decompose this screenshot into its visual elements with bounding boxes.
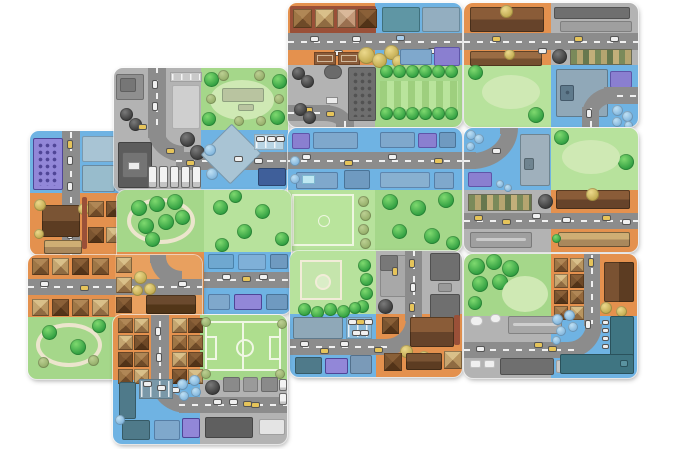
- tree-icon: [158, 214, 174, 230]
- building-stripe: [513, 323, 557, 327]
- building: [500, 358, 554, 375]
- autumn-tree-icon: [600, 302, 612, 314]
- car-icon: [186, 160, 195, 166]
- tree-icon: [528, 107, 544, 123]
- tree-icon: [42, 325, 57, 340]
- car-icon: [532, 213, 541, 219]
- car-icon: [40, 281, 49, 287]
- pitcher-circle: [315, 274, 331, 290]
- bush-icon: [256, 116, 266, 126]
- autumn-tree-icon: [144, 283, 156, 295]
- building: [266, 294, 288, 310]
- car-icon: [474, 215, 483, 221]
- car-icon: [302, 154, 311, 160]
- house-icon: [52, 299, 69, 316]
- house-icon: [42, 205, 80, 237]
- car-icon: [602, 320, 609, 325]
- car-icon: [364, 319, 373, 325]
- tree-icon: [486, 254, 502, 270]
- bush-icon: [234, 116, 244, 126]
- house-icon: [337, 9, 356, 28]
- building: [222, 88, 264, 102]
- tree-icon: [380, 65, 393, 78]
- shrub-icon: [290, 156, 300, 166]
- bush-icon: [358, 224, 369, 235]
- building: [560, 85, 574, 101]
- tree-icon: [255, 204, 270, 219]
- truck-icon: [181, 166, 190, 188]
- car-icon: [388, 154, 397, 160]
- house-icon: [172, 352, 187, 367]
- autumn-tree-icon: [34, 229, 44, 239]
- field-circle: [236, 339, 254, 357]
- building: [470, 360, 481, 368]
- storage-tank-icon: [301, 75, 314, 88]
- tree-icon: [167, 194, 183, 210]
- car-icon: [276, 136, 285, 142]
- field-circle: [318, 215, 330, 227]
- storage-tank-icon: [303, 111, 316, 124]
- car-icon: [534, 342, 543, 348]
- shrub-icon: [191, 387, 201, 397]
- clearing: [562, 140, 620, 174]
- tree-icon: [468, 65, 483, 80]
- autumn-tree-icon: [586, 188, 599, 201]
- car-icon: [434, 158, 443, 164]
- building: [172, 85, 200, 129]
- building: [238, 104, 254, 111]
- building: [470, 316, 483, 326]
- building: [382, 7, 420, 32]
- house-icon: [118, 352, 133, 367]
- bush-icon: [360, 210, 371, 221]
- car-icon: [251, 402, 260, 408]
- car-icon: [254, 158, 263, 164]
- court-line: [317, 55, 333, 62]
- house-icon: [134, 352, 149, 367]
- court-line: [341, 55, 357, 62]
- car-icon: [326, 111, 335, 117]
- building: [234, 294, 262, 310]
- building-windows: [528, 162, 530, 166]
- tree-icon: [175, 210, 190, 225]
- car-icon: [476, 346, 485, 352]
- car-icon: [67, 140, 73, 149]
- sports-field: [205, 321, 281, 371]
- autumn-tree-icon: [500, 5, 513, 18]
- car-icon: [259, 274, 268, 280]
- tree-icon: [272, 74, 287, 89]
- road: [151, 315, 169, 379]
- building: [208, 294, 230, 310]
- building: [380, 132, 415, 148]
- bush-icon: [201, 369, 211, 379]
- car-icon: [340, 341, 349, 347]
- shrub-icon: [177, 379, 188, 390]
- shrub-icon: [179, 391, 189, 401]
- tree-icon: [229, 190, 242, 203]
- tree-icon: [275, 232, 289, 246]
- card-f[interactable]: [113, 315, 287, 444]
- car-icon: [602, 344, 609, 349]
- card-t2[interactable]: [464, 3, 638, 127]
- bush-icon: [201, 317, 211, 327]
- car-icon: [602, 328, 609, 333]
- building: [82, 165, 115, 192]
- tree-icon: [360, 273, 373, 286]
- hedge: [82, 197, 87, 249]
- tree-icon: [445, 65, 458, 78]
- car-icon: [242, 276, 251, 282]
- building: [418, 133, 437, 148]
- autumn-tree-icon: [134, 271, 147, 284]
- house-icon: [384, 353, 402, 371]
- house-icon: [604, 262, 634, 302]
- tree-icon: [468, 296, 482, 310]
- tree-icon: [149, 196, 165, 212]
- bush-icon: [218, 70, 229, 81]
- shrub-icon: [552, 336, 561, 345]
- tree-icon: [270, 110, 285, 125]
- car-icon: [492, 148, 501, 154]
- shipping-containers: [468, 194, 532, 211]
- sports-field: [292, 194, 354, 246]
- car-icon: [602, 336, 609, 341]
- car-icon: [548, 346, 557, 352]
- card-a[interactable]: [114, 68, 288, 192]
- house-icon: [44, 240, 82, 254]
- road-dash: [28, 286, 202, 288]
- bush-icon: [206, 94, 216, 104]
- tree-icon: [324, 303, 337, 316]
- road: [464, 152, 476, 169]
- house-icon: [382, 317, 399, 334]
- tree-icon: [419, 107, 432, 120]
- building: [560, 21, 632, 32]
- parking-stripes: [172, 74, 200, 80]
- storage-tank-icon: [552, 49, 567, 64]
- shrub-icon: [115, 415, 125, 425]
- building: [524, 158, 534, 170]
- storage-tank-icon: [378, 299, 393, 314]
- car-icon: [602, 215, 611, 221]
- house-icon: [118, 318, 133, 333]
- car-icon: [622, 219, 631, 225]
- building: [610, 71, 632, 88]
- bush-icon: [38, 357, 49, 368]
- house-icon: [554, 274, 568, 288]
- building: [348, 67, 376, 121]
- building: [82, 136, 115, 162]
- building: [182, 418, 200, 438]
- road-dash: [464, 160, 476, 162]
- clearing: [502, 276, 548, 312]
- building: [325, 358, 348, 374]
- truck-icon: [279, 379, 287, 391]
- tree-icon: [131, 200, 147, 216]
- tree-icon: [204, 72, 219, 87]
- tree-icon: [215, 238, 229, 252]
- court: [314, 52, 336, 65]
- tree-icon: [406, 107, 419, 120]
- building: [468, 172, 492, 187]
- autumn-tree-icon: [132, 285, 143, 296]
- car-icon: [409, 259, 415, 268]
- tree-icon: [393, 65, 406, 78]
- tree-icon: [472, 276, 488, 292]
- storage-tank-icon: [180, 132, 195, 147]
- shrub-icon: [206, 168, 218, 180]
- house-icon: [32, 258, 49, 275]
- clearing: [482, 75, 540, 109]
- truck-icon: [159, 166, 168, 188]
- car-icon: [152, 80, 158, 89]
- sign: [128, 162, 140, 170]
- pool: [302, 175, 315, 184]
- shrub-icon: [204, 144, 216, 156]
- shrub-icon: [290, 174, 300, 184]
- tree-icon: [298, 303, 311, 316]
- tree-icon: [554, 130, 569, 145]
- building: [238, 254, 266, 270]
- car-icon: [213, 399, 222, 405]
- tree-icon: [419, 65, 432, 78]
- building-stripe: [476, 238, 526, 241]
- car-icon: [586, 109, 592, 118]
- car-icon: [588, 258, 594, 267]
- house-icon: [146, 295, 196, 314]
- tree-icon: [349, 302, 361, 314]
- building-windows: [37, 142, 59, 186]
- building: [119, 382, 136, 419]
- tree-icon: [432, 107, 445, 120]
- house-icon: [88, 201, 104, 217]
- house-icon: [134, 335, 149, 350]
- building: [434, 172, 454, 189]
- shrub-icon: [466, 142, 475, 151]
- car-icon: [502, 219, 511, 225]
- car-icon: [360, 330, 369, 336]
- house-icon: [406, 353, 442, 370]
- shrub-icon: [564, 310, 575, 321]
- house-icon: [52, 258, 69, 275]
- tree-icon: [445, 107, 458, 120]
- building: [205, 417, 253, 438]
- road-dash: [464, 220, 638, 222]
- house-icon: [188, 335, 203, 350]
- shrub-icon: [556, 326, 566, 336]
- car-icon: [80, 285, 89, 291]
- bush-icon: [254, 70, 265, 81]
- building: [261, 377, 278, 392]
- building: [223, 377, 240, 392]
- car-icon: [229, 399, 238, 405]
- house-icon: [188, 352, 203, 367]
- car-icon: [222, 274, 231, 280]
- shrub-icon: [474, 134, 484, 144]
- car-icon: [610, 36, 619, 42]
- house-icon: [88, 227, 104, 243]
- tree-icon: [92, 319, 106, 333]
- car-icon: [234, 156, 243, 162]
- road-dash: [159, 315, 161, 379]
- car-icon: [157, 385, 166, 391]
- bush-icon: [358, 196, 369, 207]
- car-icon: [138, 124, 147, 130]
- car-icon: [585, 320, 591, 329]
- building: [33, 138, 63, 190]
- tree-icon: [70, 339, 86, 355]
- house-icon: [92, 258, 109, 275]
- house-icon: [570, 290, 584, 304]
- truck-icon: [279, 393, 287, 405]
- car-icon: [396, 35, 405, 41]
- car-icon: [178, 281, 187, 287]
- bush-icon: [360, 238, 371, 249]
- shrub-icon: [189, 375, 200, 386]
- car-icon: [143, 381, 152, 387]
- car-icon: [300, 341, 309, 347]
- tree-icon: [446, 236, 460, 250]
- house-icon: [558, 232, 630, 247]
- card-h[interactable]: [290, 251, 462, 377]
- tree-icon: [380, 107, 393, 120]
- building: [490, 314, 501, 323]
- building: [439, 132, 456, 148]
- house-icon: [116, 257, 132, 273]
- building: [430, 253, 460, 281]
- building: [380, 172, 430, 188]
- building: [344, 170, 370, 189]
- building: [259, 419, 285, 435]
- building: [422, 7, 460, 32]
- road: [464, 213, 638, 229]
- car-icon: [574, 36, 583, 42]
- building: [258, 168, 286, 186]
- building: [484, 360, 495, 368]
- tree-icon: [438, 192, 454, 208]
- house-icon: [315, 9, 334, 28]
- car-icon: [267, 136, 276, 142]
- truck-icon: [170, 166, 179, 188]
- tree-icon: [202, 112, 216, 126]
- car-icon: [562, 217, 571, 223]
- card-c[interactable]: [288, 128, 462, 252]
- building-windows: [352, 71, 372, 117]
- goal-box-left: [205, 336, 217, 360]
- house-icon: [410, 317, 454, 347]
- autumn-tree-icon: [504, 49, 515, 60]
- house-icon: [570, 258, 584, 272]
- shrub-icon: [568, 322, 578, 332]
- car-icon: [166, 148, 175, 154]
- building: [208, 254, 234, 269]
- house-icon: [92, 299, 109, 316]
- tree-icon: [358, 259, 371, 272]
- building: [270, 254, 288, 269]
- goal-box-right: [269, 336, 281, 360]
- building: [400, 49, 432, 65]
- house-icon: [134, 318, 149, 333]
- tree-icon: [145, 232, 160, 247]
- bush-icon: [88, 355, 99, 366]
- tree-icon: [360, 287, 373, 300]
- card-d2[interactable]: [464, 128, 638, 252]
- house-icon: [358, 9, 377, 28]
- car-icon: [538, 48, 547, 54]
- shrub-icon: [552, 314, 563, 325]
- parking-lot: [170, 72, 202, 82]
- truck-icon: [192, 166, 201, 188]
- tree-icon: [552, 234, 561, 243]
- building: [350, 355, 372, 374]
- building: [434, 47, 460, 66]
- tree-icon: [424, 228, 440, 244]
- building-windows: [564, 89, 570, 97]
- card-t1[interactable]: [288, 3, 462, 127]
- house-icon: [72, 258, 89, 275]
- tree-icon: [393, 107, 406, 120]
- sports-field: [296, 256, 346, 304]
- car-icon: [152, 102, 158, 111]
- building: [470, 232, 532, 248]
- tree-icon: [432, 65, 445, 78]
- building: [554, 7, 630, 19]
- car-icon: [409, 303, 415, 312]
- tree-icon: [618, 154, 634, 170]
- house-icon: [116, 297, 132, 313]
- autumn-tree-icon: [34, 199, 46, 211]
- car-icon: [155, 327, 161, 336]
- storage-tank-icon: [205, 380, 220, 395]
- house-icon: [444, 351, 462, 369]
- house-icon: [554, 258, 568, 272]
- car-icon: [352, 36, 361, 42]
- sign: [326, 97, 338, 104]
- tree-icon: [382, 194, 398, 210]
- house-icon: [172, 318, 187, 333]
- shrub-icon: [612, 117, 622, 127]
- game-board: [0, 0, 680, 449]
- shrub-icon: [624, 121, 633, 127]
- building: [313, 132, 358, 149]
- building: [295, 357, 322, 374]
- car-icon: [410, 283, 416, 292]
- house-icon: [570, 274, 584, 288]
- tree-icon: [406, 65, 419, 78]
- building: [120, 78, 136, 92]
- bush-icon: [277, 319, 287, 329]
- crop-rows: [380, 81, 458, 109]
- road: [28, 279, 202, 295]
- card-j[interactable]: [464, 254, 637, 378]
- shrub-icon: [504, 184, 512, 192]
- car-icon: [344, 160, 353, 166]
- building: [243, 377, 258, 392]
- house-icon: [72, 299, 89, 316]
- car-icon: [256, 136, 265, 142]
- tree-icon: [213, 200, 228, 215]
- hedge: [454, 315, 460, 345]
- tree-icon: [237, 224, 252, 239]
- court: [338, 52, 360, 65]
- building: [292, 133, 310, 149]
- house-icon: [118, 335, 133, 350]
- building: [438, 283, 452, 292]
- shipping-containers: [570, 49, 632, 65]
- building: [293, 317, 343, 339]
- car-icon: [67, 156, 73, 165]
